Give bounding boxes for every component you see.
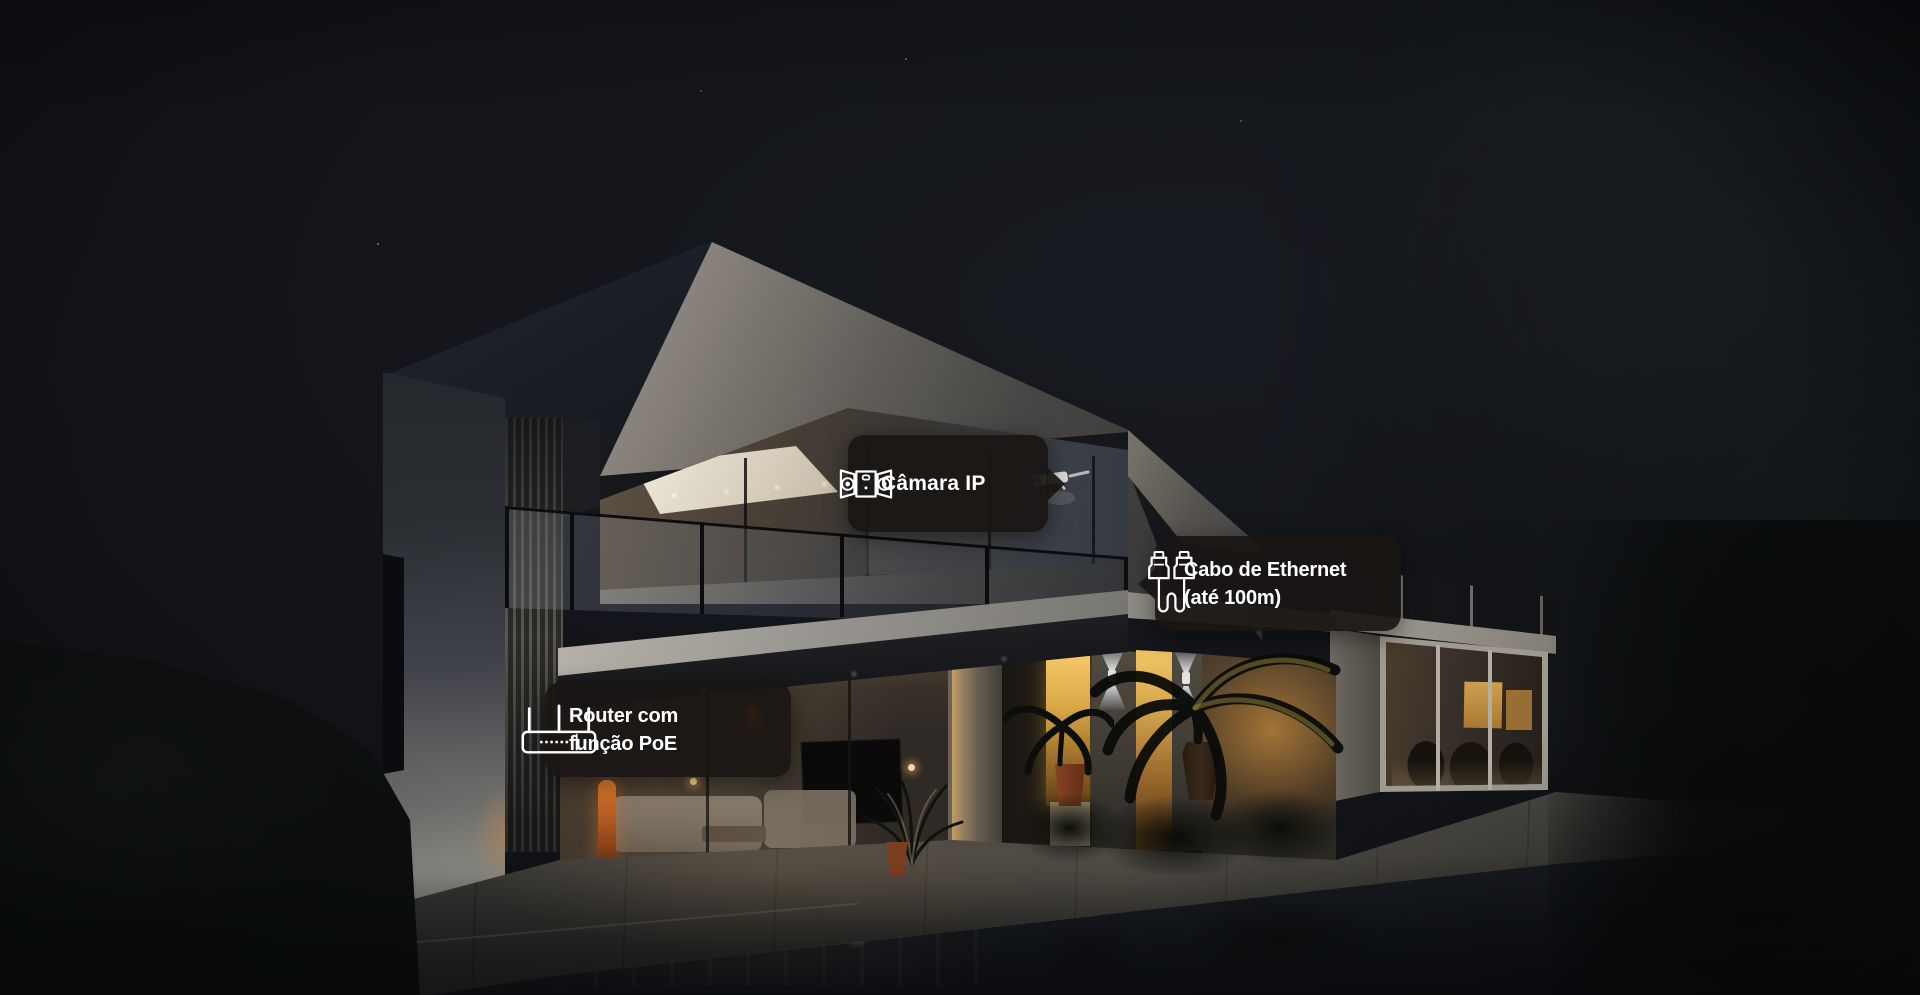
ceiling-downlights — [672, 493, 677, 498]
right-wing-interior — [1386, 642, 1542, 788]
callout-label-line1: Router com — [569, 702, 678, 730]
terrace-step — [340, 903, 858, 950]
window-mullion — [1436, 645, 1440, 791]
balustrade-post — [570, 511, 574, 610]
callout-label-line1: Cabo de Ethernet — [1184, 556, 1346, 584]
grass-plant-silhouette — [854, 776, 970, 876]
stars — [377, 243, 379, 245]
glazing-corner — [557, 420, 602, 520]
palm-reflection — [1010, 910, 1160, 995]
window-mullion — [1488, 650, 1492, 790]
side-window — [383, 554, 405, 774]
callout-poe-router: Router com função PoE — [545, 682, 791, 777]
hero-scene: Câmara IP Cabo de Ethernet (até 100m) — [0, 0, 1920, 995]
garden-bushes — [1000, 782, 1350, 874]
callout-camera-ip: Câmara IP — [848, 435, 1048, 532]
wall-art — [1506, 690, 1532, 730]
right-wing-window — [1380, 636, 1548, 792]
wall-art — [1464, 682, 1503, 729]
callout-label-line2: função PoE — [569, 730, 678, 758]
balustrade-post — [840, 533, 844, 617]
balustrade-post — [700, 522, 704, 614]
callout-label-line2: (até 100m) — [1184, 584, 1346, 612]
slat-wall-shading — [505, 418, 563, 852]
foreground-trees — [1548, 520, 1920, 995]
floor-glow — [1392, 760, 1542, 786]
callout-ethernet-cable: Cabo de Ethernet (até 100m) — [1155, 536, 1401, 631]
balustrade-post — [505, 506, 509, 608]
callout-label: Câmara IP — [881, 472, 986, 496]
callout-arrow-right — [1047, 467, 1065, 501]
